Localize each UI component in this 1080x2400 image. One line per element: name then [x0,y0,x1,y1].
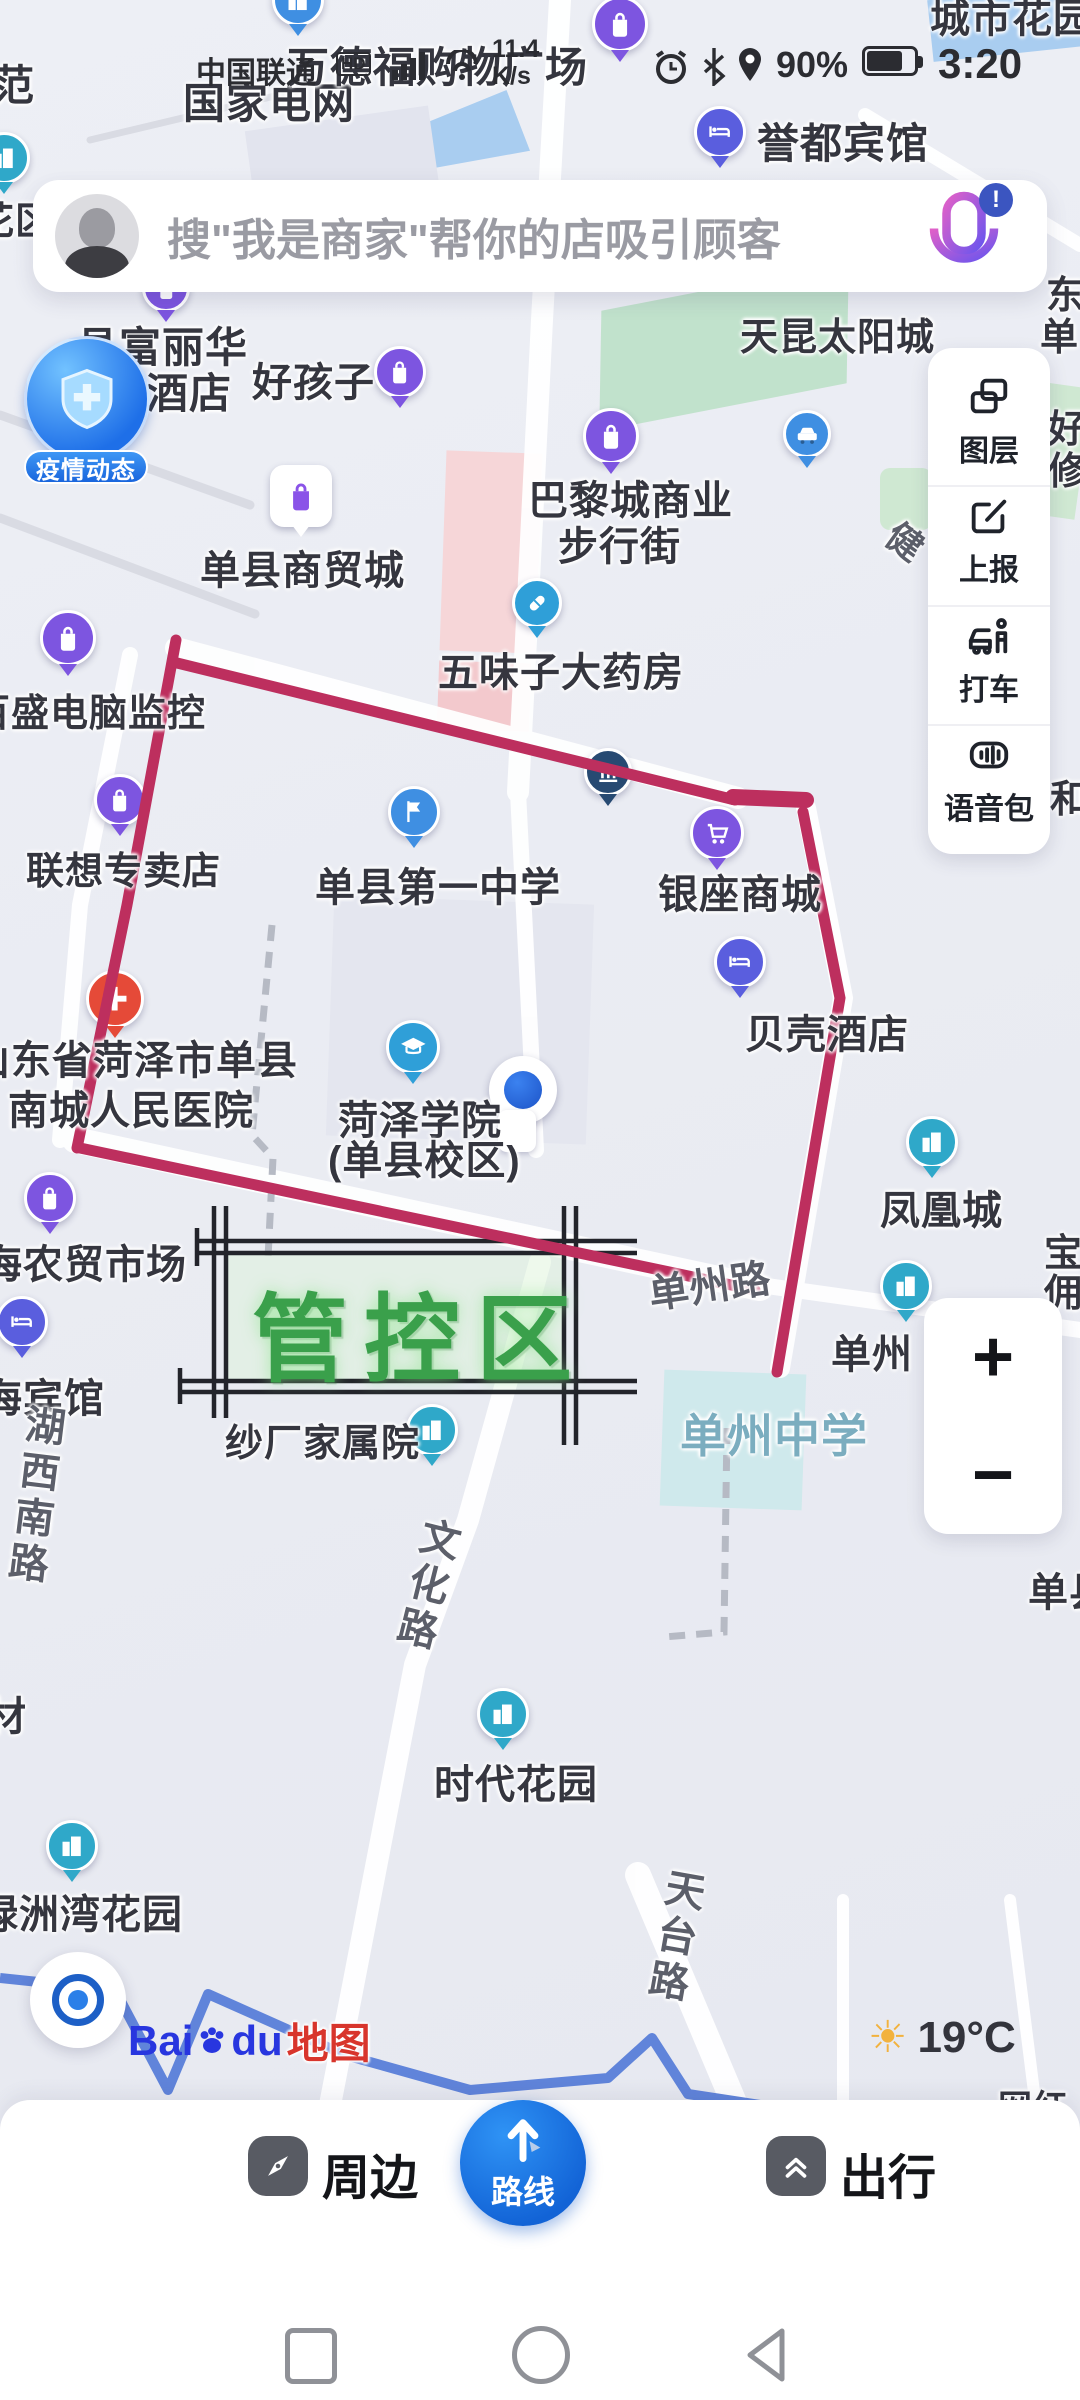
report-edit-icon [966,493,1012,539]
pill-icon [522,588,552,618]
zoom-out-button[interactable]: − [924,1416,1062,1534]
route-arrow-icon [497,2113,549,2165]
poi-pin-college[interactable] [386,1020,440,1074]
poi-label: 时代花园 [434,1752,598,1810]
layers-icon [966,374,1012,420]
locate-me-button[interactable] [30,1952,126,2048]
nearby-button-icon-wrap [248,2136,308,2196]
shopping-bag-icon [34,1182,65,1213]
voice-pack-icon [966,732,1012,778]
poi-pin-hotel-hai[interactable] [0,1296,48,1348]
poi-pin-school-yizhong[interactable] [388,786,440,838]
taxi-label: 打车 [959,665,1019,709]
poi-label: 百盛电脑监控 [0,682,206,737]
bed-icon [704,116,735,147]
weather-widget[interactable]: ☀ 19°C [868,2012,1016,2063]
travel-button-icon-wrap [766,2136,826,2196]
poi-label-partial: 单 [1040,306,1079,361]
poi-label: 贝壳酒店 [745,1002,909,1060]
poi-pin-yinzuo[interactable] [690,806,744,860]
net-speed: 11.4K/s [492,36,539,90]
building-icon [0,142,20,173]
baidu-maps-logo: Bai du 地图 [128,2010,371,2071]
android-nav-bar [0,2300,1080,2400]
poi-pin-hotel-beike[interactable] [714,936,766,988]
poi-pin-edge[interactable] [0,132,30,184]
poi-label: 海农贸市场 [0,1232,187,1290]
route-label: 路线 [491,2167,555,2213]
map-tools-panel: 图层 上报 打车 语音包 [928,348,1050,854]
road-label: 湖西南路 [0,1401,73,1591]
net-speed-value: 11.4 [492,35,539,63]
layers-label: 图层 [959,426,1019,470]
poi-label: 酒店 [146,360,232,421]
poi-pin-market[interactable] [24,1172,76,1224]
bed-icon [724,946,755,977]
shopping-bag-icon [51,621,85,655]
poi-label: 单县第一中学 [315,855,561,913]
epidemic-updates-widget[interactable]: 疫情动态 [24,336,150,484]
bluetooth-icon [702,46,726,86]
car-icon [793,420,822,449]
poi-pin-haohaizi[interactable] [374,346,426,398]
poi-label: 南城人民医院 [8,1078,254,1136]
building-icon [916,1126,947,1157]
battery-percent-label: 90% [776,44,848,86]
poi-label: 誉都宾馆 [757,110,929,171]
double-chevron-up-icon [779,2149,813,2183]
zoom-controls: + − [924,1298,1062,1534]
poi-pin-lianxiang[interactable] [94,774,146,826]
net-speed-unit: K/s [492,62,531,90]
shopping-bag-icon [282,477,320,515]
shopping-bag-icon [104,784,135,815]
poi-pin-fenghuang[interactable] [906,1116,958,1168]
shopping-bag-icon [594,419,628,453]
road-label: 单州路 [645,1246,775,1321]
clock-label: 3:20 [938,40,1022,88]
home-button circle-icon[interactable] [512,2326,570,2384]
building-icon [416,1414,447,1445]
logo-text-maps: 地图 [287,2010,371,2071]
poi-label: 单州 [831,1322,913,1380]
poi-label-partial: 材 [0,1684,27,1742]
epidemic-badge-label: 疫情动态 [24,450,148,484]
poi-label: 单县商贸城 [200,538,405,596]
user-avatar[interactable] [55,194,139,278]
poi-label: 绿洲湾花园 [0,1882,183,1940]
report-label: 上报 [959,545,1019,589]
shopping-cart-icon [701,817,734,850]
control-zone-label: 管控区 [252,1262,588,1401]
temperature-label: 19°C [917,2013,1015,2063]
poi-pin-bank[interactable] [584,748,632,796]
poi-label-school-area: 单州中学 [680,1400,868,1466]
baidu-paw-icon [194,2023,230,2059]
poi-label: 纱厂家属院 [225,1412,420,1467]
alarm-icon [652,48,690,86]
road-label: 天台路 [632,1864,713,2010]
compass-icon [261,2149,295,2183]
status-bar: 中国联通 HD 11.4K/s 90% 3:20 [0,0,1080,96]
hd-icon: HD [336,52,371,76]
taxi-icon [966,613,1012,659]
poi-pin-shangmaocheng[interactable] [270,465,332,527]
poi-label: 步行街 [558,514,681,572]
poi-pin-balicheng[interactable] [583,408,639,464]
flag-icon [398,796,429,827]
poi-label: 天昆太阳城 [740,306,935,361]
poi-pin-lvzhouwan[interactable] [46,1820,98,1872]
baidu-maps-screen[interactable]: 管控区 国家电网 万德福购物广场 誉都宾馆 城市花园 范 花区 县富丽华 酒店 … [0,0,1080,2400]
battery-icon [862,46,918,76]
travel-tab[interactable]: 出行 [840,2138,936,2208]
sun-icon: ☀ [868,2012,907,2063]
poi-label: 好孩子 [252,350,375,408]
poi-label-partial: 修 [1048,440,1080,495]
poi-label: 联想专卖店 [26,840,221,895]
location-icon [736,46,764,86]
building-icon [487,1698,518,1729]
shield-cross-icon [24,336,150,462]
bed-icon [6,1306,37,1337]
poi-pin-shidai[interactable] [477,1688,529,1740]
voice-pack-button[interactable]: 语音包 [928,724,1050,834]
zoom-in-button[interactable]: + [924,1298,1062,1416]
building-icon [56,1830,87,1861]
shopping-bag-icon [384,356,415,387]
graduation-cap-icon [397,1031,430,1064]
location-dot [504,1071,542,1109]
nearby-tab[interactable]: 周边 [322,2138,418,2208]
hospital-cross-icon [97,981,132,1016]
poi-pin-hospital[interactable] [86,970,144,1028]
compass-target-icon [52,1974,104,2026]
search-input[interactable]: 搜"我是商家"帮你的店吸引顾客 [167,204,921,268]
building-icon [890,1270,921,1301]
back-button triangle-left-icon[interactable] [742,2326,790,2384]
poi-pin-bus[interactable] [783,410,831,458]
route-button[interactable]: 路线 [460,2100,586,2226]
poi-pin-baisheng[interactable] [40,610,96,666]
poi-pin-pharmacy[interactable] [512,578,562,628]
signal-bars-icon [392,48,432,82]
poi-label: (单县校区) [328,1128,521,1186]
search-bar[interactable]: 搜"我是商家"帮你的店吸引顾客 ! [33,180,1047,292]
poi-label: 五味子大药房 [438,640,684,698]
notification-badge: ! [979,183,1013,217]
poi-label: 银座商城 [658,862,822,920]
road-label: 文化路 [380,1511,470,1659]
poi-label-partial: 和 [1050,768,1080,823]
carrier-label: 中国联通 [196,48,316,92]
wifi-icon [444,50,480,82]
logo-text-du: du [231,2017,282,2065]
report-button[interactable]: 上报 [928,485,1050,595]
voice-pack-label: 语音包 [944,784,1034,828]
logo-text-bai: Bai [128,2017,193,2065]
poi-pin-hotel-yudu[interactable] [694,106,746,158]
recents-button square-icon[interactable] [285,2328,337,2384]
poi-label-partial: 单县 [1028,1560,1080,1618]
poi-label: 凤凰城 [880,1178,1003,1236]
taxi-button[interactable]: 打车 [928,605,1050,715]
voice-search-button[interactable]: ! [921,191,1007,281]
layers-button[interactable]: 图层 [928,368,1050,476]
bank-icon [594,758,623,787]
